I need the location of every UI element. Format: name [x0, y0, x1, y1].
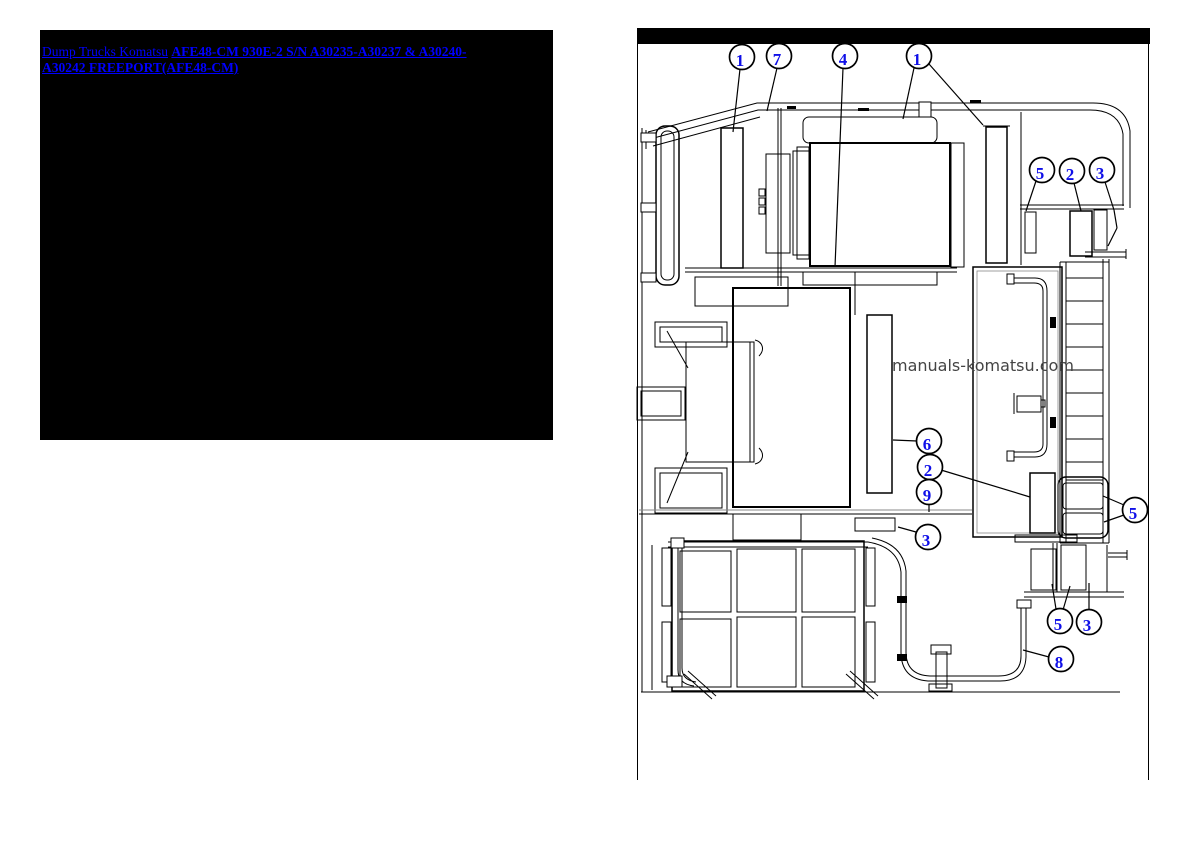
part-item-5-right-a — [1063, 483, 1103, 509]
callout-number[interactable]: 9 — [923, 486, 932, 505]
part-item-5-right-b — [1063, 513, 1103, 534]
callout-number[interactable]: 8 — [1055, 653, 1064, 672]
truck-parts-diagram-svg: manuals-komatsu.com 174152362935538 — [630, 20, 1160, 792]
part-item-5-bottom — [1031, 549, 1056, 590]
callout-leader-line — [893, 440, 917, 441]
callout-number[interactable]: 5 — [1054, 615, 1063, 634]
callout-number[interactable]: 2 — [924, 461, 933, 480]
handrail-loop — [868, 538, 1031, 691]
callout-number[interactable]: 3 — [1096, 164, 1105, 183]
catalog-header-panel: Dump Trucks Komatsu AFE48-CM 930E-2 S/N … — [40, 30, 553, 440]
callout-1[interactable]: 1 — [730, 45, 755, 133]
part-item-2-mid — [1030, 473, 1055, 533]
callout-leader-line — [1108, 228, 1117, 246]
callout-number[interactable]: 1 — [913, 50, 922, 69]
callout-5[interactable]: 5 — [1103, 496, 1148, 523]
roof-tab — [919, 102, 931, 117]
callout-number[interactable]: 6 — [923, 435, 932, 454]
callout-3[interactable]: 3 — [898, 525, 941, 551]
callout-leader-line — [929, 64, 983, 125]
breadcrumb: Dump Trucks Komatsu AFE48-CM 930E-2 S/N … — [40, 30, 504, 76]
callout-2[interactable]: 2 — [1060, 159, 1085, 212]
callout-number[interactable]: 1 — [736, 51, 745, 70]
part-item-3-mid — [855, 518, 895, 531]
callout-leader-line — [941, 470, 1030, 497]
callout-7[interactable]: 7 — [767, 44, 792, 112]
callout-leader-line — [1103, 496, 1124, 505]
callout-leader-line — [1104, 515, 1124, 522]
diagram-frame — [637, 28, 1150, 780]
callout-leader-line — [767, 68, 777, 111]
callout-leader-line — [1023, 650, 1049, 657]
engine-box — [733, 288, 850, 507]
part-item-5-top — [1025, 212, 1036, 253]
callout-3[interactable]: 3 — [1077, 583, 1102, 635]
fan-duct — [637, 322, 762, 513]
center-cover-top — [803, 117, 937, 143]
callout-leader-line — [835, 68, 843, 267]
callout-9[interactable]: 9 — [917, 480, 942, 513]
part-item-2-top — [1070, 211, 1092, 256]
callout-leader-line — [903, 68, 914, 119]
part-item-1-left — [721, 128, 743, 268]
callout-6[interactable]: 6 — [893, 429, 942, 455]
part-item-3-bottom — [1061, 545, 1086, 590]
callout-number[interactable]: 3 — [922, 531, 931, 550]
watermark-text: manuals-komatsu.com — [892, 356, 1074, 375]
callout-8[interactable]: 8 — [1023, 647, 1074, 673]
callout-4[interactable]: 4 — [833, 44, 858, 268]
callout-leader-line — [1105, 182, 1114, 210]
ladder — [1060, 259, 1109, 543]
part-item-6 — [867, 315, 892, 493]
callout-leader-line — [898, 527, 916, 532]
category-link[interactable]: Dump Trucks Komatsu — [42, 44, 168, 59]
callout-number[interactable]: 3 — [1083, 616, 1092, 635]
callout-1[interactable]: 1 — [903, 44, 983, 126]
bottom-right-platform — [1024, 543, 1127, 597]
callout-leader-line — [1026, 181, 1036, 211]
callout-number[interactable]: 5 — [1036, 164, 1045, 183]
callout-number[interactable]: 5 — [1129, 504, 1138, 523]
bottom-grille — [662, 538, 878, 699]
center-cover — [810, 143, 950, 266]
callout-number[interactable]: 4 — [839, 50, 848, 69]
callout-number[interactable]: 2 — [1066, 165, 1075, 184]
part-item-3-top — [1094, 210, 1107, 250]
diagram-top-bar — [637, 28, 1150, 44]
callout-number[interactable]: 7 — [773, 50, 782, 69]
left-handrail — [656, 126, 679, 285]
part-item-1-right — [986, 127, 1007, 263]
callout-5[interactable]: 5 — [1026, 158, 1055, 212]
callout-leader-line — [1074, 183, 1081, 211]
parts-diagram: manuals-komatsu.com 174152362935538 — [630, 20, 1160, 792]
callout-leader-line — [1114, 210, 1117, 228]
